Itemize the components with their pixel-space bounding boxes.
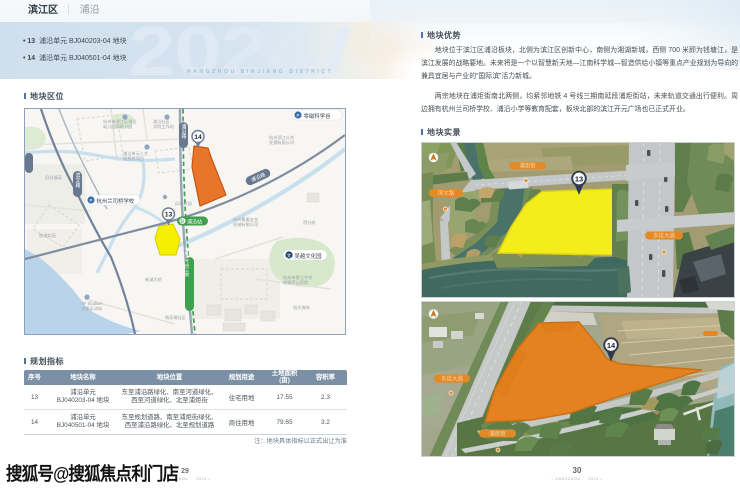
svg-text:14: 14: [607, 341, 616, 350]
svg-text:学康运动场: 学康运动场: [81, 305, 102, 312]
svg-text:新浦大桥: 新浦大桥: [145, 276, 163, 283]
svg-text:东信大道: 东信大道: [441, 375, 464, 383]
svg-text:文: 文: [287, 252, 292, 259]
svg-text:风科技园: 风科技园: [175, 200, 192, 207]
svg-text:租赁房项目: 租赁房项目: [123, 155, 144, 162]
svg-text:消防工作站: 消防工作站: [153, 123, 174, 130]
svg-text:浦沿站: 浦沿站: [187, 219, 202, 226]
svg-text:P: P: [89, 198, 92, 203]
svg-text:秋漾实苑: 秋漾实苑: [39, 232, 57, 239]
svg-text:东信大道: 东信大道: [653, 232, 676, 240]
svg-text:浦炬街: 浦炬街: [519, 162, 536, 170]
svg-text:杨家墩社区: 杨家墩社区: [165, 314, 186, 321]
svg-text:浦沿路: 浦沿路: [181, 123, 187, 140]
svg-text:P: P: [296, 113, 299, 118]
svg-text:滨文路: 滨文路: [75, 172, 81, 189]
svg-text:14: 14: [194, 134, 202, 141]
svg-text:滨文路: 滨文路: [438, 189, 455, 197]
svg-text:轨: 轨: [180, 218, 185, 225]
svg-text:杭州兰司桥学校: 杭州兰司桥学校: [97, 197, 135, 205]
svg-text:13: 13: [165, 212, 173, 219]
svg-text:机械有限公司: 机械有限公司: [233, 221, 258, 228]
svg-text:滨升府: 滨升府: [303, 219, 316, 226]
svg-text:吴越文化园: 吴越文化园: [295, 252, 322, 260]
svg-text:13: 13: [575, 174, 583, 183]
svg-text:戒徽萃山西院: 戒徽萃山西院: [283, 279, 309, 286]
svg-text:地铁4号线三期: 地铁4号线三期: [184, 246, 190, 279]
svg-text:交通有限公司: 交通有限公司: [269, 139, 294, 146]
svg-text:浦炬街: 浦炬街: [489, 430, 506, 438]
svg-text:零磁科学谷: 零磁科学谷: [304, 112, 332, 120]
svg-text:阳光海岸: 阳光海岸: [293, 304, 310, 311]
svg-text:归谷福苑: 归谷福苑: [45, 174, 63, 181]
svg-text:幼儿园滨联分园: 幼儿园滨联分园: [103, 123, 132, 130]
